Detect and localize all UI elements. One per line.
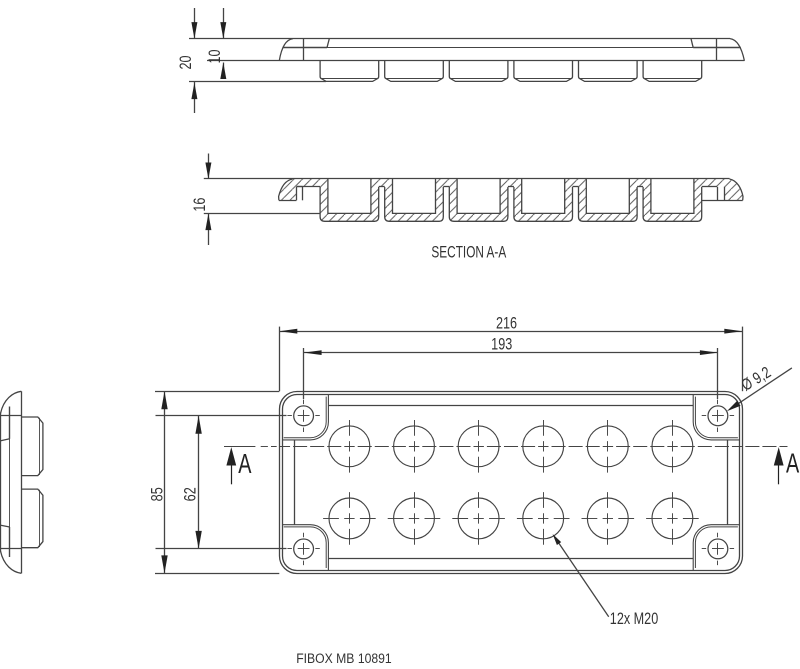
svg-text:A: A bbox=[786, 448, 799, 479]
svg-text:16: 16 bbox=[192, 198, 210, 212]
svg-text:193: 193 bbox=[491, 336, 512, 354]
svg-text:20: 20 bbox=[178, 55, 196, 69]
svg-text:10: 10 bbox=[206, 49, 224, 63]
svg-text:216: 216 bbox=[496, 315, 517, 333]
svg-text:12x M20: 12x M20 bbox=[610, 611, 658, 629]
svg-text:FIBOX MB 10891: FIBOX MB 10891 bbox=[296, 650, 392, 666]
svg-text:A: A bbox=[238, 449, 251, 480]
svg-text:85: 85 bbox=[149, 487, 167, 501]
svg-text:62: 62 bbox=[182, 487, 200, 501]
svg-text:SECTION A-A: SECTION A-A bbox=[431, 244, 506, 262]
svg-text:Ø 9,2: Ø 9,2 bbox=[739, 364, 775, 395]
